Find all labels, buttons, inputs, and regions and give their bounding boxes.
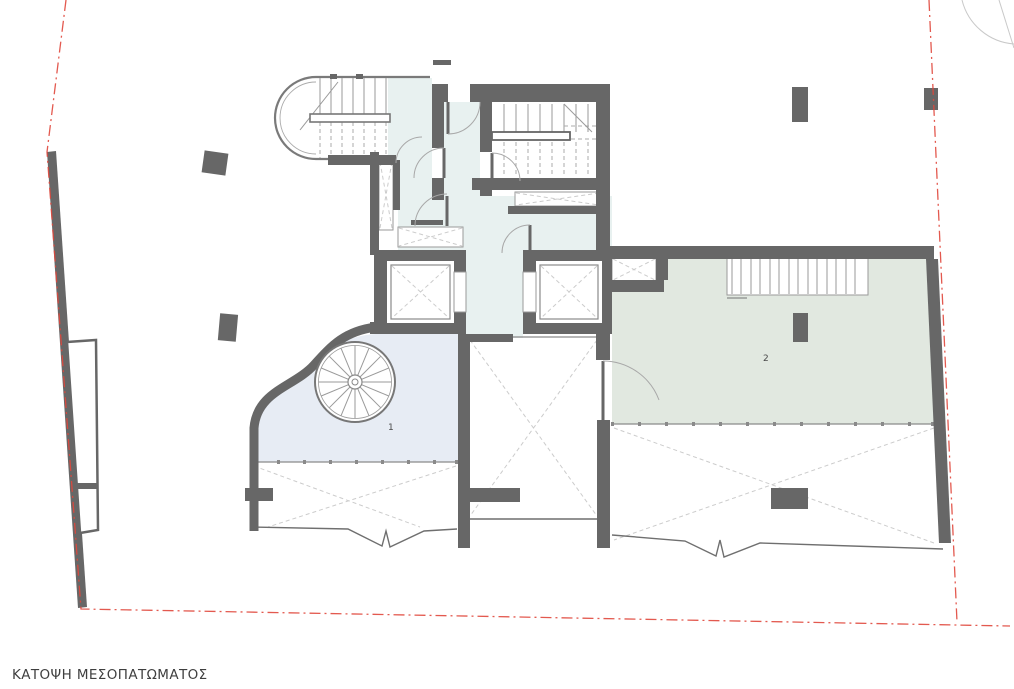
floor-plan-page: 1 2 ΚΑΤΟΨΗ ΜΕΣΟΠΑΤΩΜΑΤΟΣ <box>0 0 1014 689</box>
elevator-left <box>374 250 466 334</box>
top-wall-opening <box>448 84 470 102</box>
void-room1 <box>252 466 457 547</box>
spiral-staircase <box>315 342 395 422</box>
room-1-label: 1 <box>388 423 394 433</box>
room2-staircase <box>727 258 868 298</box>
floor-plan-drawing: 1 2 ΚΑΤΟΨΗ ΜΕΣΟΠΑΤΩΜΑΤΟΣ <box>0 0 1014 689</box>
main-staircase <box>492 102 596 184</box>
room-2-label: 2 <box>763 354 769 364</box>
elevator-right <box>523 250 612 334</box>
site-left-wall <box>47 151 98 608</box>
drawing-title: ΚΑΤΟΨΗ ΜΕΣΟΠΑΤΩΜΑΤΟΣ <box>12 667 208 683</box>
corner-reference-arc <box>962 0 1014 48</box>
